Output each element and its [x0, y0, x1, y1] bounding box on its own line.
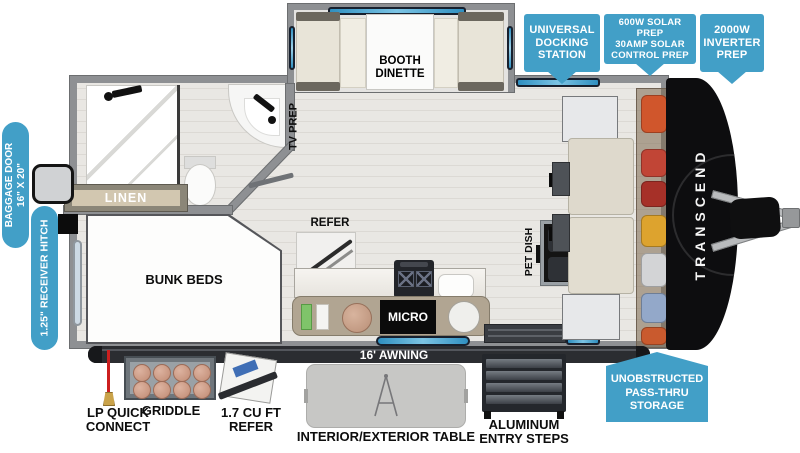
exterior-table-label: INTERIOR/EXTERIOR TABLE: [296, 430, 476, 444]
booth-dinette-label: BOOTH DINETTE: [375, 55, 424, 81]
refer-label: REFER: [298, 217, 362, 230]
inverter-prep-callout: 2000W INVERTER PREP: [700, 14, 764, 72]
shower-divider-icon: [177, 85, 180, 188]
receiver-hitch-icon: [58, 214, 78, 234]
island-burner-icon: [342, 303, 372, 333]
griddle-icon: [124, 356, 216, 400]
murphy-bed-cushion: [568, 138, 634, 215]
mini-refer-icon: [219, 352, 277, 404]
dinette-cushion: [434, 18, 458, 88]
toilet-icon: [184, 164, 216, 206]
baggage-door-callout: BAGGAGE DOOR 16" X 20": [2, 122, 29, 248]
stored-gear-icon: [641, 253, 667, 287]
stored-gear-icon: [641, 327, 667, 345]
entry-steps-label: ALUMINUM ENTRY STEPS: [462, 418, 586, 447]
callout-pointer-icon: [547, 71, 577, 84]
receiver-hitch-callout: 1.25" RECEIVER HITCH: [31, 206, 58, 350]
rv-floorplan-diagram: BOOTH DINETTE TV PREP LINEN BUNK BEDS RE…: [0, 0, 800, 453]
stored-gear-icon: [641, 215, 667, 247]
slide-right-window-icon: [507, 26, 513, 70]
bench-cap-icon: [296, 12, 340, 21]
baggage-door-icon: [32, 164, 74, 204]
passthru-storage-callout: UNOBSTRUCTED PASS-THRU STORAGE: [606, 352, 708, 422]
dinette-bench-right: [458, 16, 504, 88]
callout-pointer-icon: [635, 63, 665, 76]
bedside-cabinet: [552, 214, 570, 252]
murphy-bed-cushion: [568, 217, 634, 294]
hitch-coupler-icon: [782, 208, 800, 228]
pass-thru-storage: [636, 88, 670, 348]
bench-cap-icon: [458, 12, 504, 21]
dinette-table: BOOTH DINETTE: [366, 14, 434, 90]
dinette-bench-left: [296, 16, 340, 88]
lp-line-icon: [107, 350, 110, 394]
slide-left-window-icon: [289, 26, 295, 70]
entry-door-icon: [376, 336, 470, 346]
stored-gear-icon: [641, 293, 667, 323]
bunk-beds: BUNK BEDS: [86, 214, 282, 344]
lp-connector-icon: [103, 392, 115, 406]
bench-cap-icon: [458, 82, 504, 91]
kitchen-sink-icon: [438, 274, 474, 298]
exterior-table-icon: [306, 364, 466, 428]
nightstand: [562, 294, 620, 340]
stored-gear-icon: [641, 181, 667, 207]
nightstand: [562, 96, 618, 142]
bench-cap-icon: [296, 82, 340, 91]
island-sink-icon: [448, 301, 480, 333]
microwave: MICRO: [380, 300, 436, 334]
propane-cover-icon: [729, 196, 782, 239]
faucet-icon: [268, 116, 276, 124]
stove-icon: [394, 260, 434, 298]
dinette-cushion: [340, 18, 366, 88]
linen-cabinet: LINEN: [64, 184, 188, 212]
entry-step-well: [484, 324, 566, 343]
bunk-window-icon: [73, 240, 82, 326]
bunk-beds-label: BUNK BEDS: [86, 214, 282, 344]
tv-prep-label: TV PREP: [288, 95, 301, 159]
bedside-cabinet: [552, 162, 570, 196]
griddle-label: GRIDDLE: [128, 404, 214, 418]
stored-gear-icon: [641, 95, 667, 133]
stored-gear-icon: [641, 149, 667, 177]
shower-head-icon: [104, 92, 113, 101]
callout-pointer-icon: [717, 71, 747, 84]
shower: [86, 85, 180, 188]
brand-label: TRANSCEND: [692, 144, 712, 284]
solar-prep-callout: 600W SOLAR PREP 30AMP SOLAR CONTROL PREP: [604, 14, 696, 64]
linen-label: LINEN: [65, 185, 187, 211]
entry-steps-icon: [482, 354, 566, 412]
docking-station-callout: UNIVERSAL DOCKING STATION: [524, 14, 600, 72]
front-cap: TRANSCEND: [666, 78, 738, 350]
island-item-icon: [301, 304, 312, 330]
pet-dish-label: PET DISH: [523, 221, 535, 283]
mini-refer-label: 1.7 CU FT REFER: [208, 406, 294, 435]
island-item-icon: [316, 304, 329, 330]
